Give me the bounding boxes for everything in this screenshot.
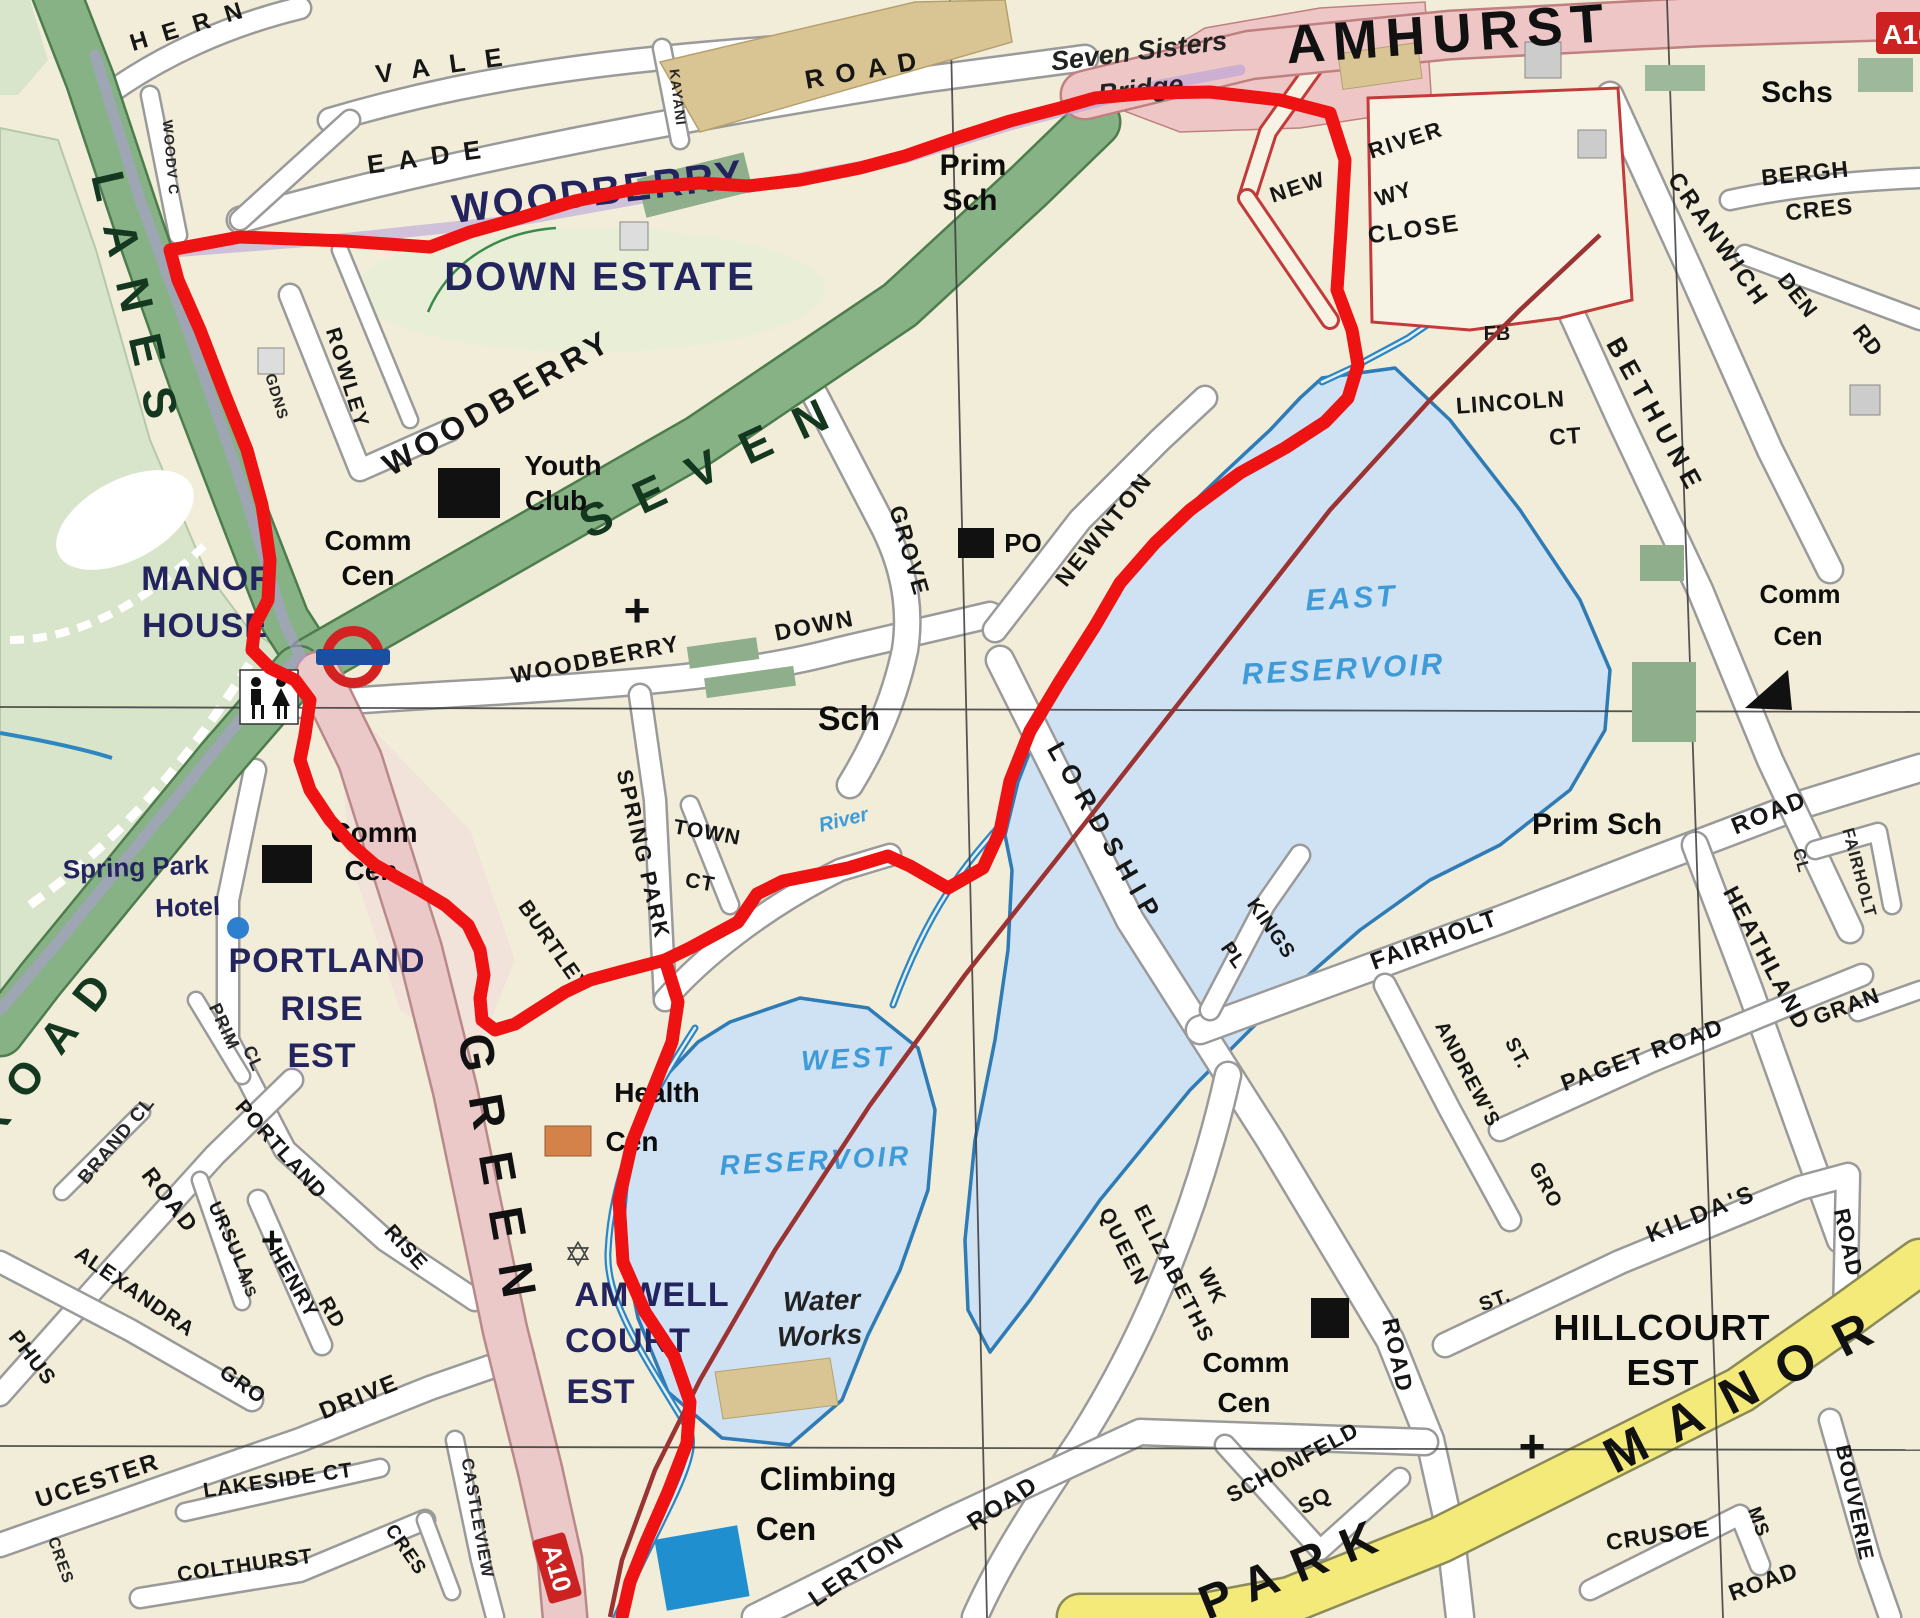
church-cross-icon: + — [261, 1220, 283, 1262]
building-sage — [1645, 65, 1705, 91]
building-sage — [1858, 58, 1913, 92]
map-label: WEST — [800, 1041, 894, 1077]
church-cross-icon: + — [624, 584, 651, 636]
church-cross-icon: + — [1519, 1420, 1546, 1472]
building-gray — [258, 348, 284, 374]
map-label: Sch — [942, 184, 997, 217]
map-label: Cen — [1218, 1387, 1271, 1418]
building-sage — [1632, 662, 1696, 742]
map-label: Prim — [940, 149, 1007, 182]
map-label: Cen — [342, 560, 395, 591]
pool-building — [654, 1525, 749, 1610]
map-label: Comm — [1202, 1347, 1289, 1378]
youth-club-building — [438, 468, 500, 518]
map-label: Water — [783, 1284, 863, 1318]
map-label: Comm — [1760, 579, 1841, 609]
map-label: Comm — [324, 525, 411, 556]
map-label: HILLCOURT — [1554, 1307, 1771, 1348]
map-label: Schs — [1761, 76, 1833, 109]
building-gray — [1578, 130, 1606, 158]
map-label: RISE — [280, 990, 363, 1028]
map-label: EST — [287, 1037, 356, 1075]
map-label: EST — [566, 1373, 635, 1411]
map-label: Climbing — [760, 1461, 897, 1497]
map-canvas: VALEEADEROADHERNWOODV CKAYANISeven Siste… — [0, 0, 1920, 1618]
comm-cen-building — [1311, 1298, 1349, 1338]
map-label: Club — [525, 485, 587, 516]
synagogue-star-icon: ✡ — [564, 1236, 593, 1274]
map-label: DOWN ESTATE — [444, 255, 756, 299]
map-label: Spring Park — [62, 849, 209, 884]
street-map-svg: VALEEADEROADHERNWOODV CKAYANISeven Siste… — [0, 0, 1920, 1618]
map-label: Cen — [756, 1511, 816, 1547]
map-label: EAST — [1305, 580, 1399, 618]
health-centre-building — [545, 1126, 591, 1156]
map-label: Sch — [818, 700, 880, 738]
svg-text:A10: A10 — [1882, 19, 1920, 50]
blue-marker — [227, 917, 249, 939]
post-office-building — [958, 528, 994, 558]
a10-badge: A10 — [1876, 12, 1920, 54]
building-gray — [620, 222, 648, 250]
map-label: Youth — [524, 450, 601, 481]
map-label: PORTLAND — [229, 942, 426, 980]
building-gray — [1850, 385, 1880, 415]
comm-cen-building — [262, 845, 312, 883]
map-label: PO — [1004, 528, 1042, 558]
map-label: AMWELL — [574, 1276, 729, 1314]
map-label: Hotel — [155, 891, 221, 923]
map-label: CT — [1548, 422, 1582, 450]
map-label: Cen — [1773, 621, 1822, 651]
building-sage — [1640, 545, 1684, 581]
map-label: MANOR — [141, 560, 274, 598]
map-label: Prim Sch — [1532, 808, 1662, 841]
map-label: Works — [777, 1319, 863, 1353]
